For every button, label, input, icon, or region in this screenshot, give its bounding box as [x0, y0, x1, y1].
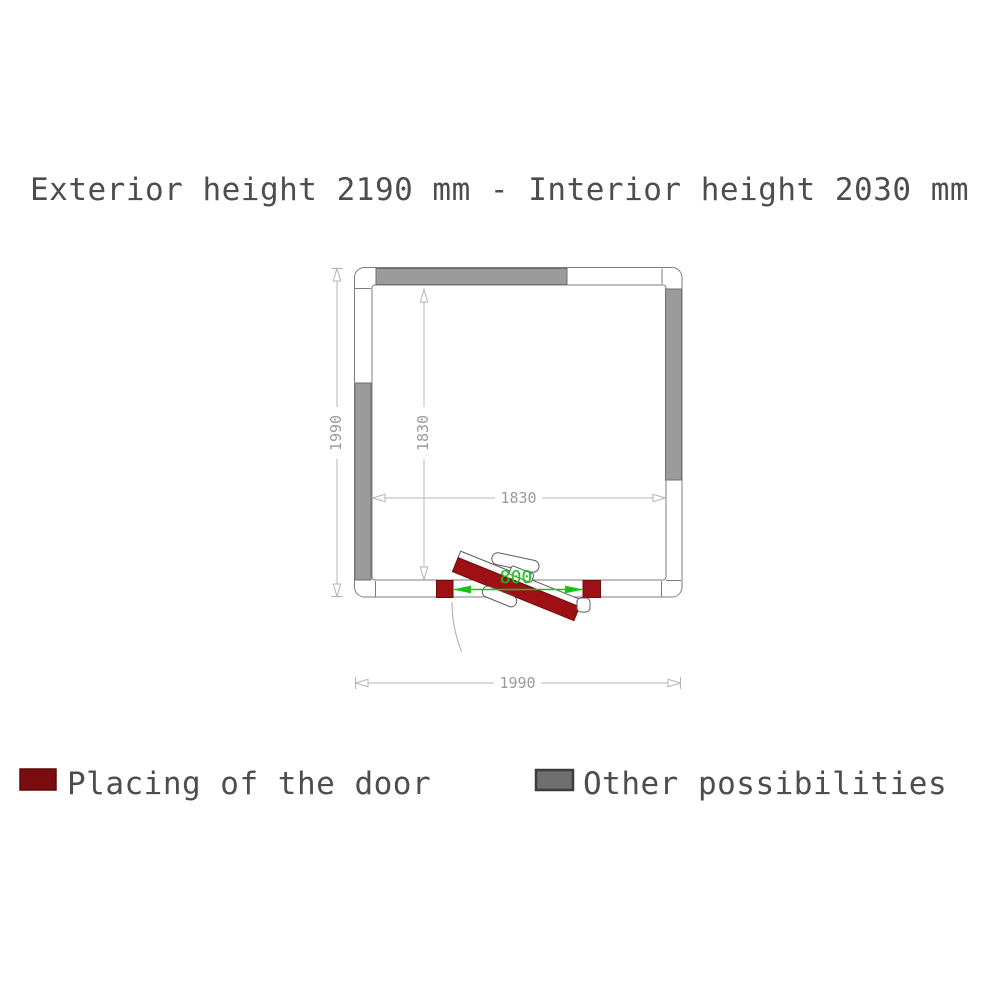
door-swing-arc	[452, 602, 462, 652]
dim-exterior-depth: 1990	[327, 269, 345, 597]
dim-arrow-down	[333, 584, 340, 597]
door-post-right	[583, 581, 601, 598]
door-hinge	[577, 598, 590, 612]
wall-segment-right-gray	[666, 289, 682, 480]
room-walls	[355, 268, 683, 598]
legend-swatch-other	[536, 770, 573, 790]
legend-label-other: Other possibilities	[583, 766, 947, 802]
wall-segment-top-gray	[376, 269, 567, 285]
dim-label-exterior-width: 1990	[499, 674, 535, 692]
dim-label-interior-width: 1830	[500, 489, 536, 507]
dim-arrow-left	[356, 679, 369, 686]
floor-plan-drawing: Exterior height 2190 mm - Interior heigh…	[0, 0, 1000, 1000]
dim-label-interior-depth: 1830	[414, 415, 432, 451]
dim-label-door-width: 800	[500, 567, 533, 588]
page-title: Exterior height 2190 mm - Interior heigh…	[30, 172, 969, 208]
dim-arrow-right	[668, 679, 681, 686]
dim-label-exterior-depth: 1990	[327, 415, 345, 451]
wall-segment-left-gray	[355, 383, 371, 580]
dim-arrow-up	[333, 269, 340, 282]
page: Exterior height 2190 mm - Interior heigh…	[0, 0, 1000, 1000]
door-post-left	[437, 581, 454, 598]
legend-swatch-door	[20, 769, 56, 790]
dim-exterior-width: 1990	[356, 674, 681, 692]
legend: Placing of the door Other possibilities	[20, 766, 947, 802]
legend-label-door: Placing of the door	[67, 766, 431, 802]
